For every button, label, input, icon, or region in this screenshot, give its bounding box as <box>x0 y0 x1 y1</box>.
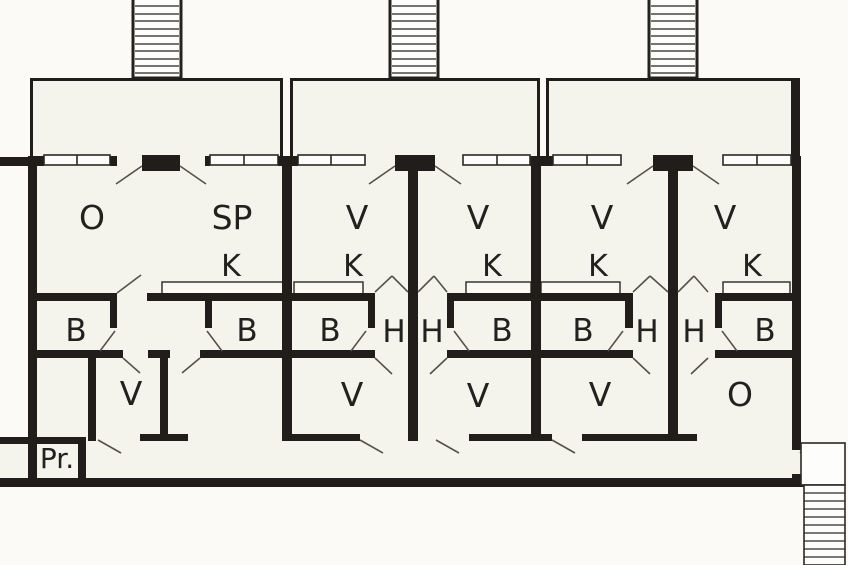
room-label-b: B <box>572 313 593 349</box>
floor-plan-screenshot: O SP V V V V K K K K K B B B H H B B H H… <box>0 0 848 565</box>
room-label-k: K <box>343 249 364 284</box>
room-label-b: B <box>65 313 86 349</box>
room-label-b: B <box>319 313 340 349</box>
room-label-h: H <box>382 314 405 350</box>
room-label-v: V <box>467 376 490 415</box>
window <box>210 155 278 165</box>
room-label-v: V <box>467 198 490 237</box>
chimney-2 <box>390 0 438 78</box>
floor-plan-drawing: O SP V V V V K K K K K B B B H H B B H H… <box>0 0 848 565</box>
room-label-h: H <box>682 314 705 350</box>
window <box>463 155 530 165</box>
room-label-b: B <box>236 313 257 349</box>
room-label-k: K <box>482 249 503 284</box>
room-label-v: V <box>120 374 143 413</box>
window <box>723 155 791 165</box>
room-label-v: V <box>591 198 614 237</box>
room-label-k: K <box>588 249 609 284</box>
room-label-h: H <box>420 314 443 350</box>
room-label-b: B <box>491 313 512 349</box>
window <box>298 155 365 165</box>
room-label-k: K <box>742 249 763 284</box>
window <box>44 155 110 165</box>
room-label-v: V <box>346 198 369 237</box>
room-label-pr: Pr. <box>40 442 74 475</box>
room-label-b: B <box>754 313 775 349</box>
room-label-h: H <box>635 314 658 350</box>
chimney-1 <box>133 0 181 78</box>
room-label-o-3: O <box>727 375 753 414</box>
chimney-3 <box>649 0 697 78</box>
room-label-o-1: O <box>79 198 105 237</box>
room-label-v: V <box>714 198 737 237</box>
room-label-k: K <box>221 249 242 284</box>
room-label-v: V <box>589 375 612 414</box>
room-label-sp-1: SP <box>212 198 253 237</box>
window <box>553 155 621 165</box>
room-label-v: V <box>341 375 364 414</box>
staircase <box>801 443 845 565</box>
